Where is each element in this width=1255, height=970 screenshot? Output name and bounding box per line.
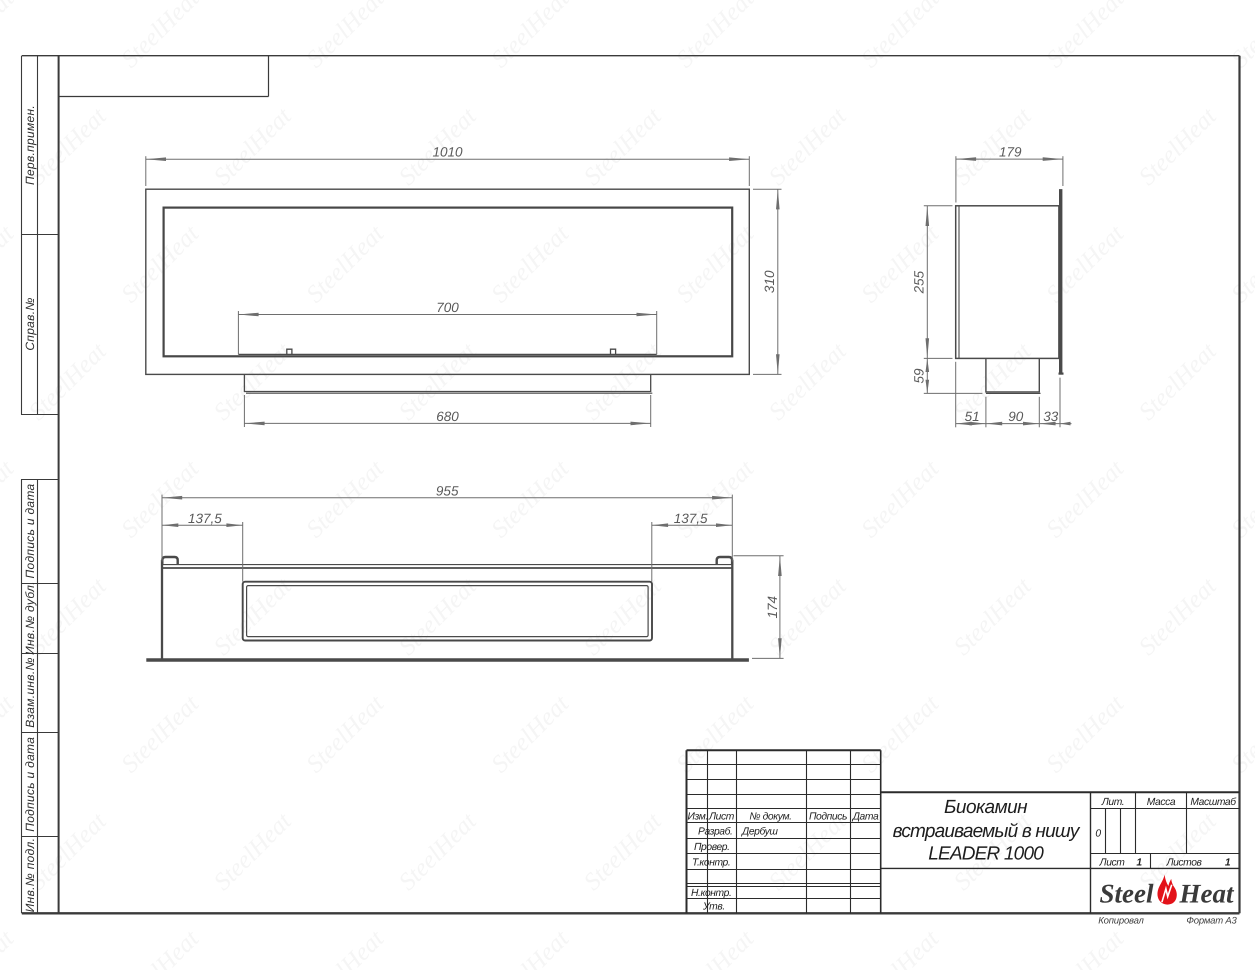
svg-text:Формат А3: Формат А3 xyxy=(1186,916,1237,927)
svg-text:Взам.инв.№: Взам.инв.№ xyxy=(23,657,37,728)
svg-text:137,5: 137,5 xyxy=(674,511,708,526)
svg-text:Инв.№ подл.: Инв.№ подл. xyxy=(23,838,37,912)
svg-text:№ докум.: № докум. xyxy=(749,812,791,823)
svg-text:51: 51 xyxy=(965,409,980,424)
svg-text:Steel: Steel xyxy=(1100,879,1154,909)
svg-text:Копировал: Копировал xyxy=(1098,916,1144,927)
svg-text:Подпись и дата: Подпись и дата xyxy=(23,737,37,832)
svg-text:Подпись и дата: Подпись и дата xyxy=(23,483,37,578)
svg-text:Лит.: Лит. xyxy=(1101,797,1125,808)
svg-text:Справ.№: Справ.№ xyxy=(23,297,37,350)
svg-text:Биокамин: Биокамин xyxy=(944,797,1028,818)
svg-text:Провер.: Провер. xyxy=(694,842,730,853)
svg-text:Дата: Дата xyxy=(852,812,879,823)
svg-text:Утв.: Утв. xyxy=(702,901,725,912)
svg-text:700: 700 xyxy=(436,300,459,315)
svg-text:Лист: Лист xyxy=(708,812,735,823)
svg-text:90: 90 xyxy=(1008,409,1024,424)
svg-text:955: 955 xyxy=(436,483,459,498)
svg-text:59: 59 xyxy=(911,368,926,384)
svg-text:179: 179 xyxy=(999,145,1022,160)
svg-text:Масштаб: Масштаб xyxy=(1190,797,1237,808)
svg-text:Heat: Heat xyxy=(1179,879,1235,909)
svg-text:Листов: Листов xyxy=(1165,857,1202,868)
svg-text:0: 0 xyxy=(1095,829,1101,840)
svg-text:Масса: Масса xyxy=(1147,797,1176,808)
svg-text:680: 680 xyxy=(436,409,459,424)
svg-text:174: 174 xyxy=(765,596,780,619)
svg-text:Изм.: Изм. xyxy=(688,812,708,823)
svg-text:310: 310 xyxy=(762,270,777,293)
svg-text:Лист: Лист xyxy=(1099,857,1126,868)
svg-text:Инв.№ дубл.: Инв.№ дубл. xyxy=(23,581,37,655)
svg-text:1: 1 xyxy=(1136,857,1142,868)
svg-text:Дербуш: Дербуш xyxy=(741,827,778,838)
svg-text:LEADER 1000: LEADER 1000 xyxy=(928,844,1044,865)
svg-text:1010: 1010 xyxy=(432,145,463,160)
svg-text:Подпись: Подпись xyxy=(809,812,847,823)
svg-text:137,5: 137,5 xyxy=(188,511,222,526)
svg-text:Разраб.: Разраб. xyxy=(698,827,732,838)
svg-text:встраиваемый в нишу: встраиваемый в нишу xyxy=(893,821,1081,842)
svg-text:Перв.примен.: Перв.примен. xyxy=(23,105,37,185)
svg-text:Т.контр.: Т.контр. xyxy=(692,857,730,868)
svg-text:255: 255 xyxy=(911,270,926,294)
svg-text:1: 1 xyxy=(1225,857,1231,868)
svg-text:33: 33 xyxy=(1043,409,1059,424)
svg-text:Н.контр.: Н.контр. xyxy=(691,888,731,899)
